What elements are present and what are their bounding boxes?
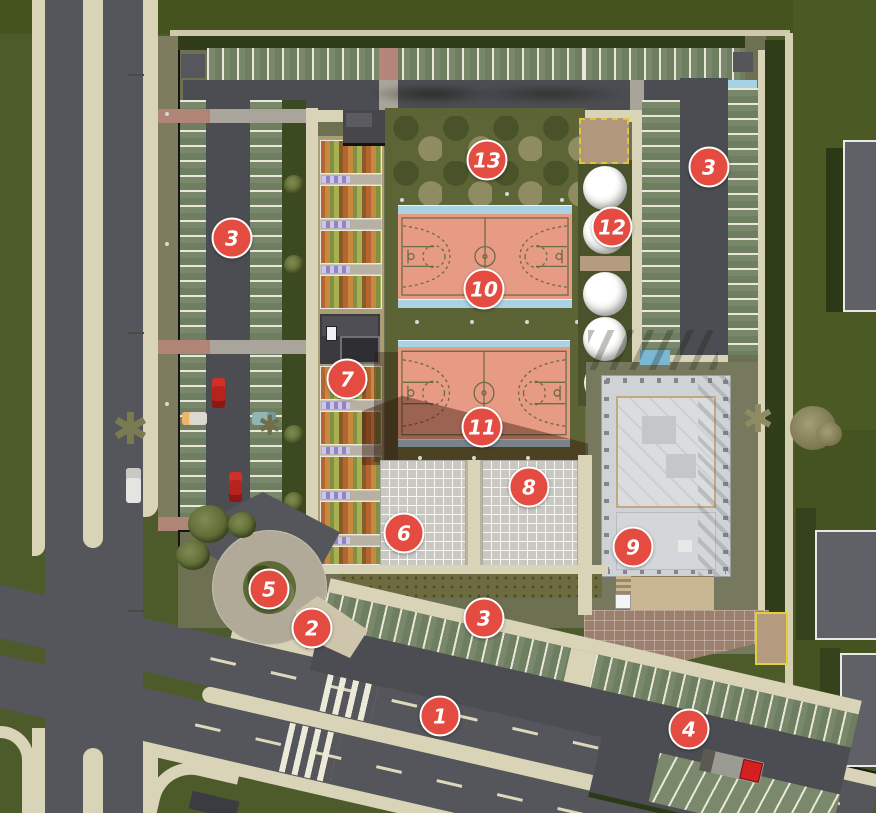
- entrance-canopy: [615, 594, 631, 609]
- plaza-walkway: [466, 460, 482, 572]
- dumpster-pad: [733, 52, 753, 72]
- roof-shade: [698, 376, 730, 576]
- south-walk: [318, 565, 608, 574]
- dome: [583, 166, 627, 210]
- plaza-west: [380, 460, 466, 572]
- west-road-median: [83, 0, 103, 548]
- court-surface: [398, 214, 572, 299]
- bench-strip: [320, 174, 382, 185]
- crosswalk: [158, 340, 210, 354]
- car-red: [229, 472, 242, 502]
- entrance-plaza: [630, 576, 714, 614]
- shed-roof: [346, 113, 372, 127]
- palm-tree: ✱: [258, 412, 281, 440]
- roof-patch: [642, 416, 676, 444]
- parking-stalls-east-top: [584, 48, 730, 80]
- west-walkway: [306, 108, 318, 562]
- lamp: [525, 320, 529, 324]
- roof-patch: [666, 454, 696, 478]
- neighbor-building: [815, 530, 876, 640]
- parking-aisle-east: [680, 78, 728, 368]
- west-road-sidewalk: [32, 0, 45, 556]
- parking-aisle-west: [206, 100, 250, 532]
- plaza-area: [380, 460, 578, 572]
- building-shadow: [826, 148, 843, 312]
- lamp: [470, 320, 474, 324]
- benches: [322, 221, 350, 228]
- street-lamp: [128, 332, 144, 334]
- building-shadow: [796, 508, 816, 640]
- lamp: [505, 192, 509, 196]
- curb-corner: [0, 726, 34, 813]
- lamp: [400, 198, 404, 202]
- tree-shadow: [348, 76, 628, 112]
- structure-door: [326, 326, 337, 341]
- tree: [176, 540, 210, 570]
- reserved-pad: [579, 118, 629, 164]
- garden-plot: [320, 366, 382, 400]
- parking-stalls-east-left: [642, 100, 680, 355]
- lamp: [165, 402, 169, 406]
- palm-tree: ✱: [742, 400, 774, 438]
- dome: [583, 210, 627, 254]
- tree-grove: [392, 116, 580, 207]
- crosswalk: [210, 340, 306, 354]
- garden-plot: [320, 275, 382, 309]
- west-road-median: [83, 748, 103, 813]
- entrance-steps: [616, 576, 631, 594]
- hedge-strip: [282, 100, 306, 532]
- parking-stalls-west-right: [250, 100, 282, 532]
- bench-strip: [320, 219, 382, 230]
- street-lamp: [128, 74, 144, 76]
- dumpster-pad: [181, 54, 205, 78]
- site-plan: ✱ ✱ ✱ 1233345678910111213: [0, 0, 876, 813]
- benches: [322, 402, 350, 409]
- neighbor-building: [843, 140, 876, 312]
- lamp: [560, 198, 564, 202]
- tree: [284, 175, 304, 195]
- street-lamp: [128, 610, 144, 612]
- building-roof: [602, 376, 730, 576]
- domes-path: [632, 110, 642, 365]
- tree: [284, 425, 304, 445]
- garden-plot: [320, 230, 382, 264]
- bleachers: [398, 299, 572, 308]
- tree: [188, 505, 230, 543]
- benches: [322, 266, 350, 273]
- shade-hatch: [588, 330, 718, 370]
- parking-stalls-west-left: [180, 100, 206, 532]
- basketball-court-north: [398, 205, 572, 308]
- lamp: [165, 112, 169, 116]
- garden-structure: [320, 314, 380, 364]
- plaza-east-walk: [578, 455, 592, 615]
- crosswalk: [210, 109, 306, 123]
- east-walk: [758, 50, 765, 650]
- basketball-court-markings: [398, 214, 572, 299]
- dome: [583, 272, 627, 316]
- tree: [228, 512, 256, 538]
- bleachers: [398, 205, 572, 214]
- bleachers: [398, 340, 570, 347]
- car-white: [182, 412, 207, 425]
- lamp: [415, 320, 419, 324]
- benches: [322, 176, 350, 183]
- roundabout-island: [243, 561, 296, 614]
- car-red: [212, 378, 225, 408]
- roof-columns: [604, 380, 609, 572]
- dome-gap-pad: [580, 256, 630, 271]
- truck-cargo: [739, 759, 763, 783]
- tree: [284, 255, 304, 275]
- bench-strip: [320, 264, 382, 275]
- garden-plot: [320, 185, 382, 219]
- shadow-patch: [374, 352, 398, 462]
- roof-skylight: [678, 540, 692, 552]
- car-white: [126, 468, 141, 503]
- benches: [322, 492, 350, 499]
- bench-strip: [320, 490, 382, 501]
- benches: [322, 447, 350, 454]
- east-hedge: [765, 40, 785, 660]
- plaza-east: [482, 460, 578, 572]
- tree: [816, 422, 842, 446]
- palm-tree: ✱: [112, 408, 149, 452]
- parking-stalls-east-right: [728, 88, 758, 355]
- blue-canopy: [728, 80, 757, 88]
- lamp: [165, 242, 169, 246]
- gate-pad: [755, 612, 788, 665]
